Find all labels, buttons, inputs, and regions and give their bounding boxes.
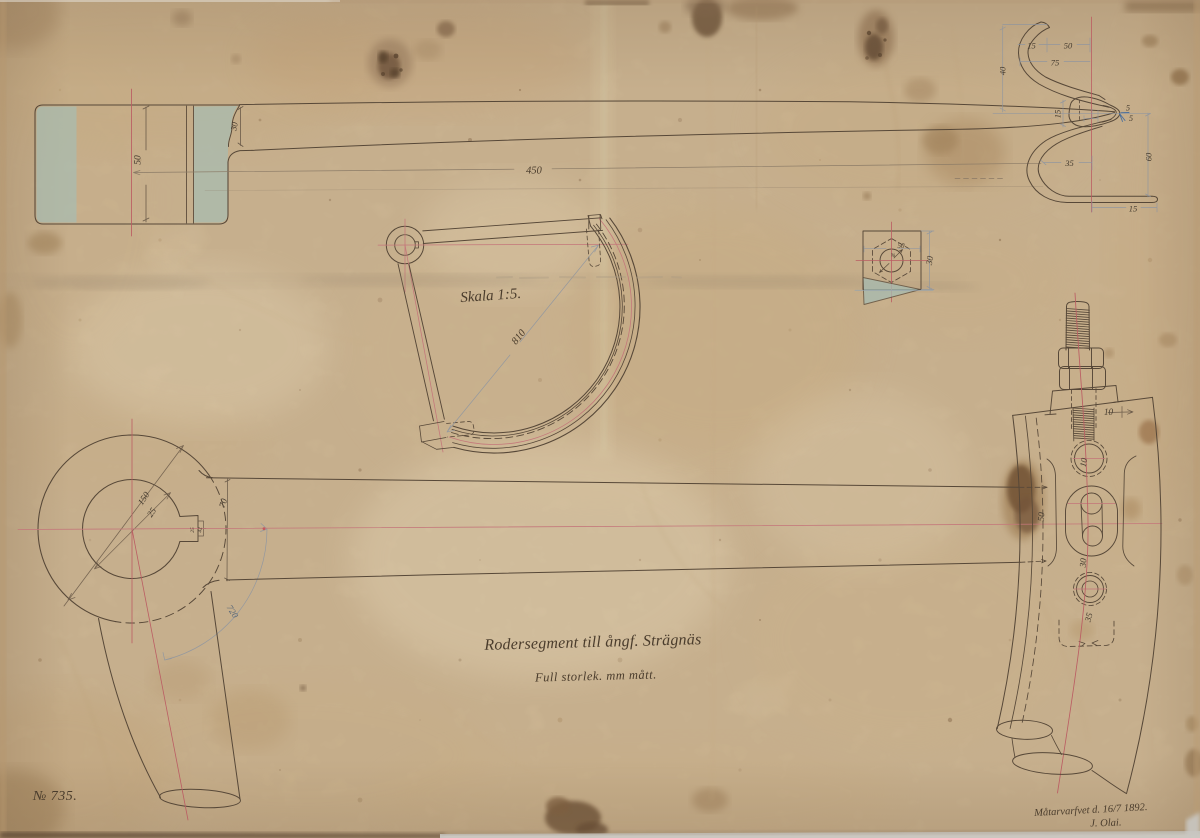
svg-text:15: 15 [1027,41,1036,51]
svg-text:50: 50 [1036,511,1047,521]
svg-text:30: 30 [1078,557,1089,568]
svg-text:42: 42 [197,527,204,533]
svg-text:40: 40 [998,66,1008,75]
svg-text:50: 50 [898,242,906,250]
svg-text:50: 50 [1064,41,1073,51]
svg-text:5: 5 [1129,114,1133,123]
svg-text:60: 60 [1144,152,1154,161]
svg-text:15: 15 [1053,110,1063,119]
svg-text:J. Olai.: J. Olai. [1090,817,1122,829]
svg-text:⅝: ⅝ [891,253,896,259]
svg-text:450: 450 [526,165,543,176]
svg-text:10: 10 [1104,407,1114,417]
svg-text:5: 5 [1126,104,1130,113]
svg-text:75: 75 [1051,58,1060,68]
svg-text:25: 25 [190,527,196,533]
svg-text:50: 50 [134,155,144,165]
svg-text:№ 735.: № 735. [32,789,77,804]
svg-text:15: 15 [1129,204,1138,214]
svg-text:35: 35 [1064,158,1074,168]
